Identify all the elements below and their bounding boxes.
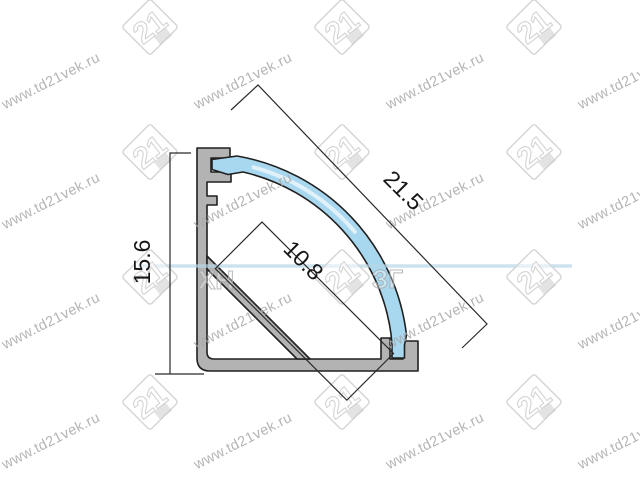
watermark-text: www.td21vek.ru bbox=[575, 410, 640, 474]
watermark-logo bbox=[122, 374, 179, 431]
watermark-text: www.td21vek.ru bbox=[0, 50, 103, 114]
watermark-text: www.td21vek.ru bbox=[191, 50, 295, 114]
watermark-logo bbox=[506, 374, 563, 431]
watermark-logo bbox=[122, 0, 179, 55]
profile-drawing: 21 www.td21vek.ruwww.td21vek.ruwww.td21v… bbox=[0, 0, 640, 480]
watermark-logo bbox=[314, 374, 371, 431]
watermark-text: www.td21vek.ru bbox=[383, 50, 487, 114]
watermark-layer: www.td21vek.ruwww.td21vek.ruwww.td21vek.… bbox=[0, 0, 640, 474]
screenshot-root: 21 www.td21vek.ruwww.td21vek.ruwww.td21v… bbox=[0, 0, 640, 480]
watermark-text: www.td21vek.ru bbox=[0, 170, 103, 234]
watermark-text: www.td21vek.ru bbox=[0, 410, 103, 474]
watermark-logo bbox=[506, 0, 563, 55]
watermark-text: www.td21vek.ru bbox=[0, 290, 103, 354]
watermark-text: www.td21vek.ru bbox=[383, 410, 487, 474]
watermark-text: www.td21vek.ru bbox=[191, 410, 295, 474]
watermark-logo bbox=[506, 249, 563, 306]
watermark-logo bbox=[314, 249, 371, 306]
dimension-height-label: 15.6 bbox=[129, 240, 155, 285]
watermark-text: www.td21vek.ru bbox=[575, 50, 640, 114]
watermark-logo bbox=[314, 0, 371, 55]
watermark-logo bbox=[506, 124, 563, 181]
watermark-text: www.td21vek.ru bbox=[575, 290, 640, 354]
watermark-text: www.td21vek.ru bbox=[575, 170, 640, 234]
watermark-letter-fragment: ЗГ bbox=[372, 264, 403, 294]
